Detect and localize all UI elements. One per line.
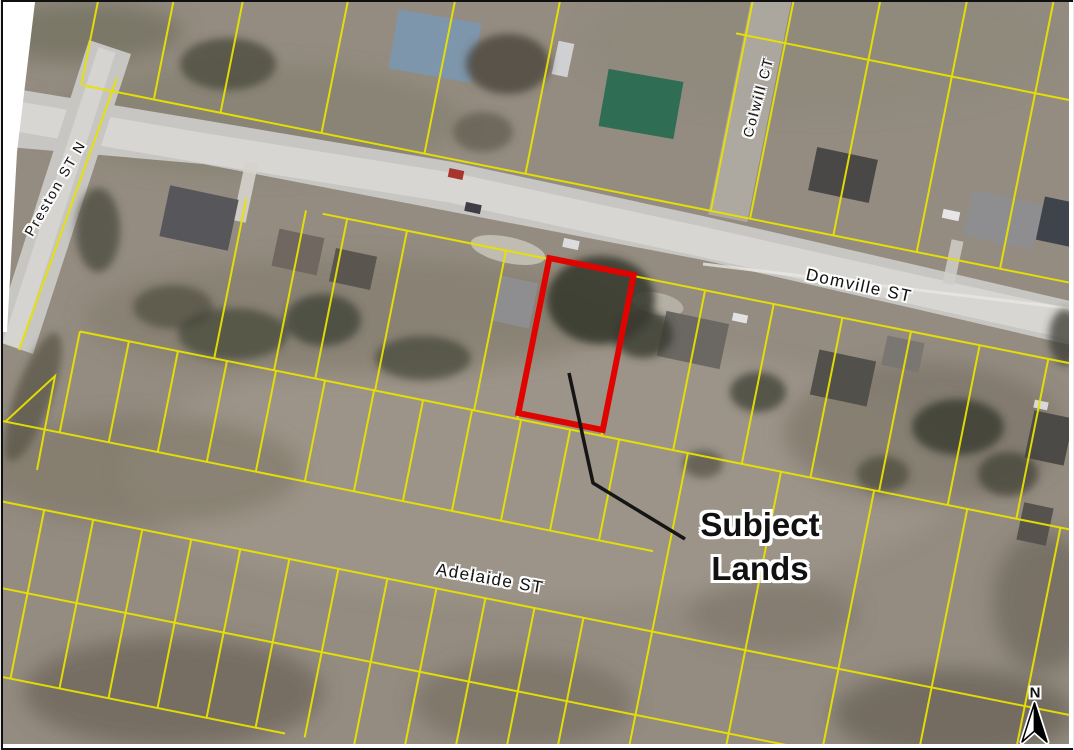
north-arrow-letter: N xyxy=(1030,685,1041,702)
aerial-photo xyxy=(3,2,1073,750)
subject-lands-line2: Lands xyxy=(700,547,819,591)
map-screenshot: Preston ST N Colwill CT Domville ST Adel… xyxy=(1,0,1073,750)
subject-lands-annotation: Subject Lands xyxy=(700,503,819,591)
subject-lands-line1: Subject xyxy=(700,503,819,547)
aerial-photo-canvas xyxy=(3,2,1073,750)
